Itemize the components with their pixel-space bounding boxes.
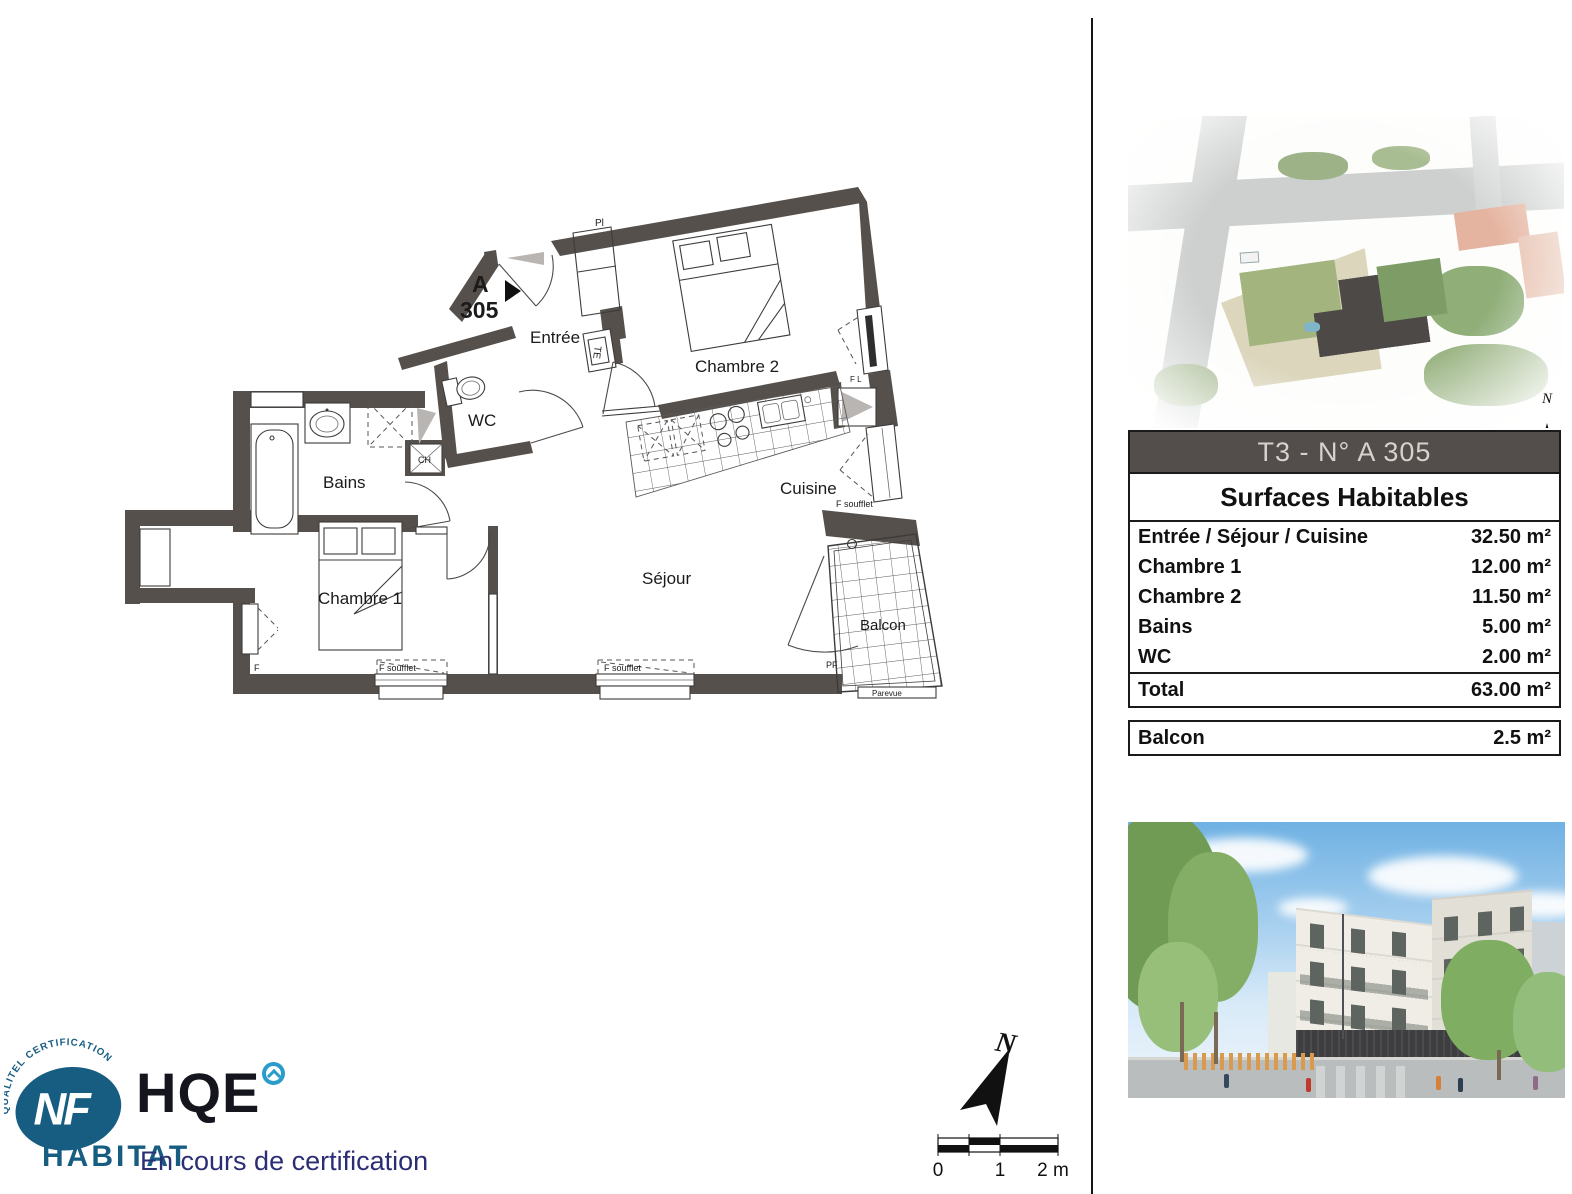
row-value: 2.00 m² — [1482, 642, 1551, 672]
annotation-ch: CH — [418, 455, 431, 465]
certification-logo: QUALITEL CERTIFICATION NF HQE HABITAT En… — [0, 1028, 440, 1194]
table-row: Entrée / Séjour / Cuisine 32.50 m² — [1130, 522, 1559, 552]
scale-label-1: 1 — [995, 1160, 1006, 1181]
certification-status: En cours de certification — [140, 1146, 428, 1177]
site-north-icon: N — [1536, 392, 1558, 424]
compass-and-scale: N 0 1 2 m — [930, 1020, 1080, 1194]
sink — [305, 403, 350, 443]
hqe-circle-icon — [262, 1062, 285, 1085]
annotation-pf: PF — [826, 660, 838, 670]
site-north-label: N — [1536, 392, 1558, 406]
room-label-cuisine: Cuisine — [780, 479, 837, 498]
balcony-value: 2.5 m² — [1493, 722, 1551, 754]
room-label-wc: WC — [468, 411, 496, 430]
surfaces-table: T3 - N° A 305 Surfaces Habitables Entrée… — [1128, 430, 1561, 756]
table-total-row: Total 63.00 m² — [1130, 672, 1559, 706]
table-row: Chambre 2 11.50 m² — [1130, 582, 1559, 612]
row-value: 11.50 m² — [1472, 582, 1551, 612]
balcony-label: Balcon — [1138, 722, 1205, 754]
scale-label-0: 0 — [933, 1160, 944, 1181]
annotation-te: TE — [590, 345, 603, 359]
row-value: 5.00 m² — [1482, 612, 1551, 642]
room-label-chambre1: Chambre 1 — [318, 589, 402, 608]
entrance-arrow-icon — [505, 280, 521, 302]
annotation-f-soufflet-1: F soufflet — [379, 663, 416, 673]
hqe-logo: HQE — [136, 1060, 285, 1125]
nf-text: NF — [34, 1084, 93, 1135]
annotation-f-soufflet-2: F soufflet — [604, 663, 641, 673]
room-label-bains: Bains — [323, 473, 366, 492]
room-label-entree: Entrée — [530, 328, 580, 347]
table-row: Chambre 1 12.00 m² — [1130, 552, 1559, 582]
table-row: Bains 5.00 m² — [1130, 612, 1559, 642]
building-render — [1128, 822, 1565, 1098]
annotation-f-soufflet-3: F soufflet — [836, 499, 873, 509]
table-subtitle: Surfaces Habitables — [1130, 474, 1559, 522]
north-arrow-icon — [960, 1048, 1010, 1126]
row-value: 12.00 m² — [1471, 552, 1551, 582]
unit-letter: A — [472, 271, 489, 297]
unit-number: 305 — [460, 297, 499, 323]
annotation-f-l: F L — [850, 375, 862, 384]
row-label: Entrée / Séjour / Cuisine — [1138, 522, 1368, 552]
row-label: WC — [1138, 642, 1171, 672]
total-value: 63.00 m² — [1471, 674, 1551, 706]
table-row: WC 2.00 m² — [1130, 642, 1559, 672]
scale-label-2m: 2 m — [1037, 1160, 1069, 1181]
table-title: T3 - N° A 305 — [1130, 432, 1559, 474]
column-divider — [1091, 18, 1093, 1194]
room-label-sejour: Séjour — [642, 569, 691, 588]
annotation-pl: Pl — [595, 218, 604, 229]
room-label-balcon: Balcon — [860, 617, 906, 634]
row-value: 32.50 m² — [1471, 522, 1551, 552]
bed-chambre1 — [319, 522, 402, 650]
total-label: Total — [1138, 674, 1184, 706]
scale-bar: 0 1 2 m — [933, 1134, 1069, 1181]
row-label: Bains — [1138, 612, 1192, 642]
annotation-parevue: Parevue — [872, 689, 902, 698]
balcony — [828, 534, 942, 698]
annotation-f: F — [254, 663, 260, 673]
row-label: Chambre 2 — [1138, 582, 1241, 612]
room-label-chambre2: Chambre 2 — [695, 357, 779, 376]
bed-chambre2 — [673, 224, 790, 351]
floor-plan: A 305 Entrée Chambre 2 WC Bains Chambre … — [100, 165, 980, 740]
page: A 305 Entrée Chambre 2 WC Bains Chambre … — [0, 0, 1572, 1194]
aerial-site-plan: N — [1128, 116, 1564, 428]
bathtub — [251, 424, 298, 534]
table-balcony-row: Balcon 2.5 m² — [1128, 720, 1561, 756]
row-label: Chambre 1 — [1138, 552, 1241, 582]
